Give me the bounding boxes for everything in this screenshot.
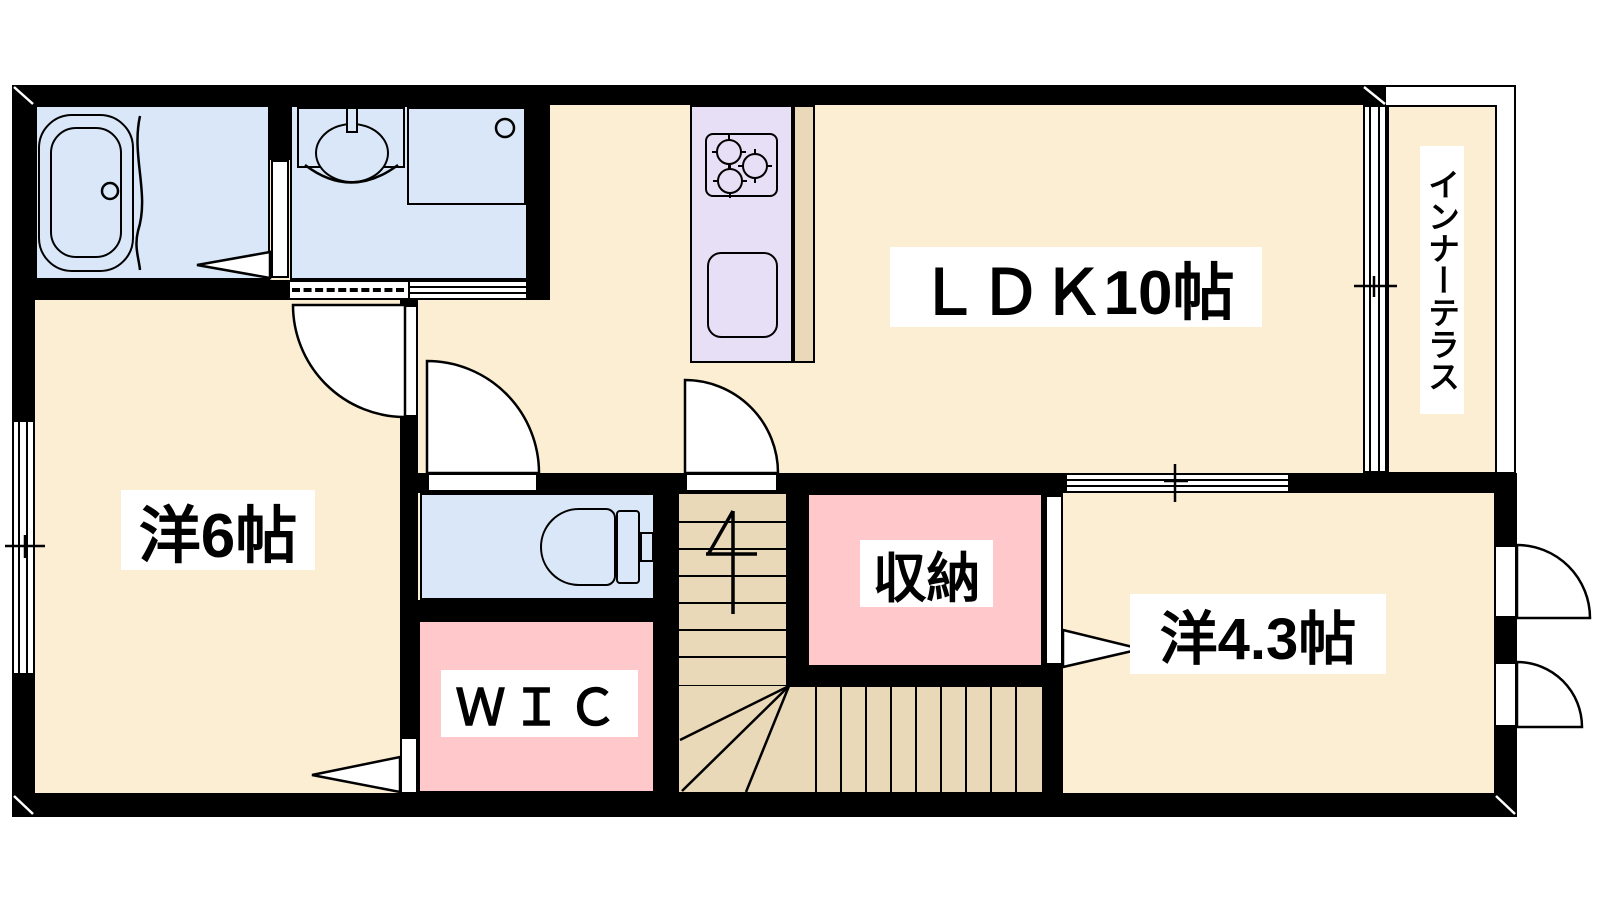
- wall-storage-left: [787, 493, 807, 685]
- label-wic: ＷＩＣ: [441, 670, 638, 737]
- stair-tread: [965, 687, 967, 793]
- window-pane-line: [1378, 107, 1380, 471]
- wall-bedroom6-top: [12, 280, 290, 300]
- wall-storage-bottom: [787, 667, 1063, 687]
- storage-door: [1045, 495, 1063, 665]
- window-left: [12, 420, 35, 675]
- wall-top: [12, 85, 1386, 105]
- faucet: [346, 107, 358, 133]
- window-pane-line: [1067, 479, 1288, 481]
- label-storage: 収納: [860, 540, 993, 607]
- wall-mid-horizontal: [418, 473, 1517, 493]
- stair-tread: [678, 602, 787, 604]
- wall-bottom: [12, 793, 1517, 817]
- bathroom-door: [271, 160, 289, 278]
- wall-washroom-right: [528, 105, 550, 300]
- stair-tread: [678, 521, 787, 523]
- exterior-door-upper-leaf: [1494, 545, 1517, 618]
- wall-right: [1494, 473, 1517, 817]
- stair-tread: [1015, 687, 1017, 793]
- window-pane-line: [1067, 485, 1288, 487]
- door-swing-exterior-lower: [1517, 662, 1582, 727]
- bedroom6-door-leaf: [400, 305, 418, 417]
- gas-stove: [705, 133, 778, 197]
- sliding-door-line: [410, 286, 526, 288]
- floor-plan: ＬＤＫ10帖 洋6帖 洋4.3帖 収納 ＷＩＣ インナーテラス: [0, 0, 1600, 900]
- window-bedroom43: [1065, 473, 1290, 493]
- toilet-tank: [616, 510, 640, 584]
- dashed-track-line: [292, 288, 404, 292]
- label-ldk: ＬＤＫ10帖: [890, 247, 1262, 327]
- label-western6: 洋6帖: [121, 490, 315, 570]
- wic-opening: [400, 737, 418, 794]
- window-pane-line: [1369, 107, 1371, 471]
- label-western43: 洋4.3帖: [1130, 594, 1386, 674]
- stair-tread: [678, 575, 787, 577]
- wall-stub: [528, 280, 550, 300]
- washing-machine-pan: [407, 107, 526, 205]
- window-pane-line: [26, 422, 28, 673]
- window-terrace: [1363, 105, 1387, 473]
- bathtub-inner: [50, 127, 122, 258]
- stairs-door-leaf: [685, 473, 778, 492]
- toilet-door-leaf: [427, 473, 538, 492]
- stair-tread: [678, 629, 787, 631]
- wall-toilet-bottom: [400, 600, 655, 620]
- wall-stairs-left: [653, 493, 678, 793]
- exterior-door-lower-leaf: [1494, 662, 1517, 727]
- stair-tread: [840, 687, 842, 793]
- staircase-lower-run: [678, 685, 1043, 793]
- stair-tread: [678, 548, 787, 550]
- toilet-bowl: [540, 508, 616, 586]
- toilet-paper-holder: [640, 532, 654, 562]
- sliding-door-line: [410, 292, 526, 294]
- wall-bath-divider: [270, 105, 290, 160]
- kitchen-sink: [707, 252, 778, 338]
- label-inner-terrace: インナーテラス: [1420, 146, 1464, 414]
- stair-tread: [865, 687, 867, 793]
- stair-tread: [940, 687, 942, 793]
- stair-tread: [890, 687, 892, 793]
- stair-tread: [915, 687, 917, 793]
- window-pane-line: [18, 422, 20, 673]
- stair-tread: [990, 687, 992, 793]
- kitchen-counter-edge: [793, 105, 815, 363]
- washroom-opening-track: [290, 280, 408, 300]
- washroom-sliding-door: [408, 280, 528, 300]
- stair-tread: [815, 687, 817, 793]
- stair-tread: [678, 656, 787, 658]
- door-swing-exterior-upper: [1517, 545, 1590, 618]
